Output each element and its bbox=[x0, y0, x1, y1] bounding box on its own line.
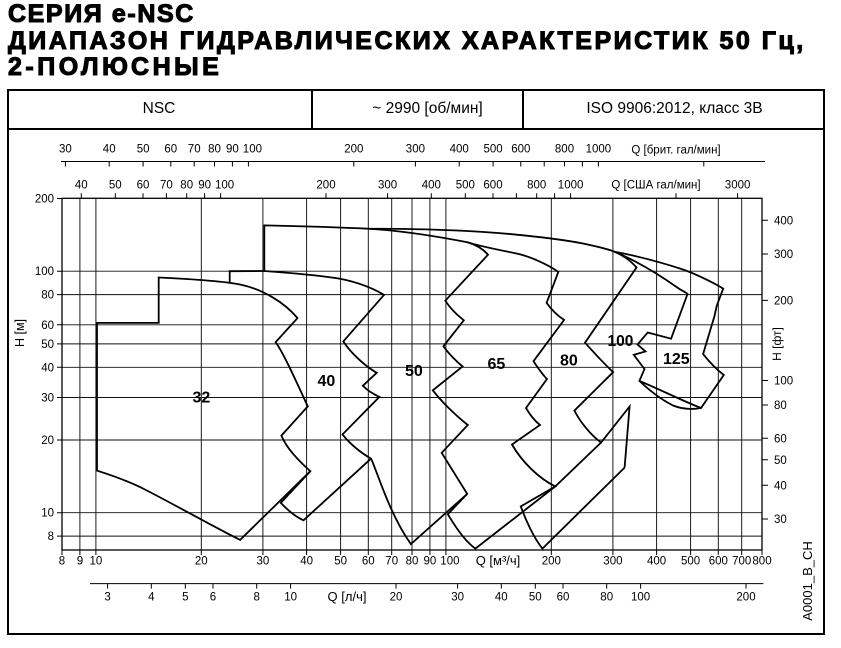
svg-text:30: 30 bbox=[451, 592, 464, 604]
svg-text:20: 20 bbox=[41, 435, 54, 447]
svg-text:3000: 3000 bbox=[725, 180, 751, 192]
svg-text:10: 10 bbox=[41, 508, 54, 520]
svg-text:8: 8 bbox=[48, 531, 54, 543]
svg-text:80: 80 bbox=[774, 400, 787, 412]
svg-text:50: 50 bbox=[774, 455, 787, 467]
svg-text:40: 40 bbox=[300, 556, 313, 568]
svg-text:80: 80 bbox=[406, 556, 419, 568]
svg-text:60: 60 bbox=[137, 180, 150, 192]
svg-text:200: 200 bbox=[35, 194, 54, 206]
svg-text:80: 80 bbox=[208, 144, 221, 156]
svg-text:30: 30 bbox=[41, 393, 54, 405]
svg-text:200: 200 bbox=[774, 295, 793, 307]
svg-text:800: 800 bbox=[527, 180, 546, 192]
svg-text:100: 100 bbox=[631, 592, 650, 604]
svg-text:300: 300 bbox=[406, 144, 425, 156]
svg-text:60: 60 bbox=[41, 320, 54, 332]
svg-text:30: 30 bbox=[774, 514, 787, 526]
svg-text:400: 400 bbox=[774, 215, 793, 227]
svg-text:30: 30 bbox=[257, 556, 270, 568]
svg-text:90: 90 bbox=[424, 556, 437, 568]
svg-text:6: 6 bbox=[210, 592, 216, 604]
svg-text:500: 500 bbox=[456, 180, 475, 192]
svg-text:500: 500 bbox=[484, 144, 503, 156]
svg-text:90: 90 bbox=[198, 180, 211, 192]
svg-text:100: 100 bbox=[35, 266, 54, 278]
svg-text:200: 200 bbox=[736, 592, 755, 604]
svg-text:5: 5 bbox=[182, 592, 188, 604]
svg-text:40: 40 bbox=[75, 180, 88, 192]
svg-text:300: 300 bbox=[603, 556, 622, 568]
svg-text:200: 200 bbox=[542, 556, 561, 568]
svg-text:40: 40 bbox=[495, 592, 508, 604]
svg-text:50: 50 bbox=[405, 363, 423, 380]
svg-text:40: 40 bbox=[774, 480, 787, 492]
svg-text:8: 8 bbox=[59, 556, 65, 568]
svg-text:40: 40 bbox=[318, 373, 336, 390]
svg-text:Q [л/ч]: Q [л/ч] bbox=[328, 589, 367, 604]
svg-text:125: 125 bbox=[663, 351, 690, 368]
svg-text:80: 80 bbox=[560, 353, 578, 370]
svg-text:A0001_B_CH: A0001_B_CH bbox=[800, 541, 815, 621]
svg-text:60: 60 bbox=[362, 556, 375, 568]
svg-text:200: 200 bbox=[344, 144, 363, 156]
svg-text:60: 60 bbox=[164, 144, 177, 156]
svg-text:1000: 1000 bbox=[586, 144, 612, 156]
svg-text:70: 70 bbox=[160, 180, 173, 192]
svg-text:50: 50 bbox=[109, 180, 122, 192]
svg-text:40: 40 bbox=[41, 362, 54, 374]
svg-text:100: 100 bbox=[440, 556, 459, 568]
svg-text:80: 80 bbox=[600, 592, 613, 604]
svg-text:200: 200 bbox=[316, 180, 335, 192]
svg-text:32: 32 bbox=[193, 390, 211, 407]
svg-text:50: 50 bbox=[334, 556, 347, 568]
svg-text:20: 20 bbox=[390, 592, 403, 604]
svg-text:70: 70 bbox=[188, 144, 201, 156]
svg-text:600: 600 bbox=[511, 144, 530, 156]
svg-text:Q [США гал/мин]: Q [США гал/мин] bbox=[611, 180, 700, 192]
svg-text:400: 400 bbox=[422, 180, 441, 192]
svg-text:10: 10 bbox=[90, 556, 103, 568]
svg-text:700: 700 bbox=[732, 556, 751, 568]
svg-text:600: 600 bbox=[709, 556, 728, 568]
svg-text:3: 3 bbox=[104, 592, 110, 604]
svg-text:100: 100 bbox=[215, 180, 234, 192]
svg-text:8: 8 bbox=[253, 592, 259, 604]
svg-text:30: 30 bbox=[59, 144, 72, 156]
svg-text:60: 60 bbox=[557, 592, 570, 604]
svg-text:50: 50 bbox=[529, 592, 542, 604]
svg-text:10: 10 bbox=[284, 592, 297, 604]
svg-text:300: 300 bbox=[378, 180, 397, 192]
svg-text:9: 9 bbox=[77, 556, 83, 568]
svg-text:100: 100 bbox=[774, 376, 793, 388]
svg-text:800: 800 bbox=[555, 144, 574, 156]
svg-text:4: 4 bbox=[148, 592, 155, 604]
svg-text:400: 400 bbox=[450, 144, 469, 156]
svg-text:40: 40 bbox=[103, 144, 116, 156]
svg-text:50: 50 bbox=[41, 339, 54, 351]
svg-text:90: 90 bbox=[226, 144, 239, 156]
svg-text:1000: 1000 bbox=[558, 180, 584, 192]
svg-text:80: 80 bbox=[41, 290, 54, 302]
svg-text:300: 300 bbox=[774, 249, 793, 261]
svg-text:Н [фт]: Н [фт] bbox=[770, 327, 784, 361]
svg-text:Н [м]: Н [м] bbox=[13, 319, 27, 347]
svg-text:Q [брит. гал/мин]: Q [брит. гал/мин] bbox=[631, 145, 720, 157]
svg-text:100: 100 bbox=[608, 333, 634, 350]
svg-text:800: 800 bbox=[752, 556, 771, 568]
svg-text:100: 100 bbox=[243, 144, 262, 156]
svg-text:600: 600 bbox=[483, 180, 502, 192]
svg-text:80: 80 bbox=[180, 180, 193, 192]
svg-text:60: 60 bbox=[774, 433, 787, 445]
svg-text:400: 400 bbox=[647, 556, 666, 568]
svg-text:65: 65 bbox=[488, 356, 506, 373]
svg-text:500: 500 bbox=[681, 556, 700, 568]
svg-text:Q [м³/ч]: Q [м³/ч] bbox=[476, 553, 521, 568]
svg-text:50: 50 bbox=[137, 144, 150, 156]
svg-text:20: 20 bbox=[195, 556, 208, 568]
svg-text:70: 70 bbox=[385, 556, 398, 568]
